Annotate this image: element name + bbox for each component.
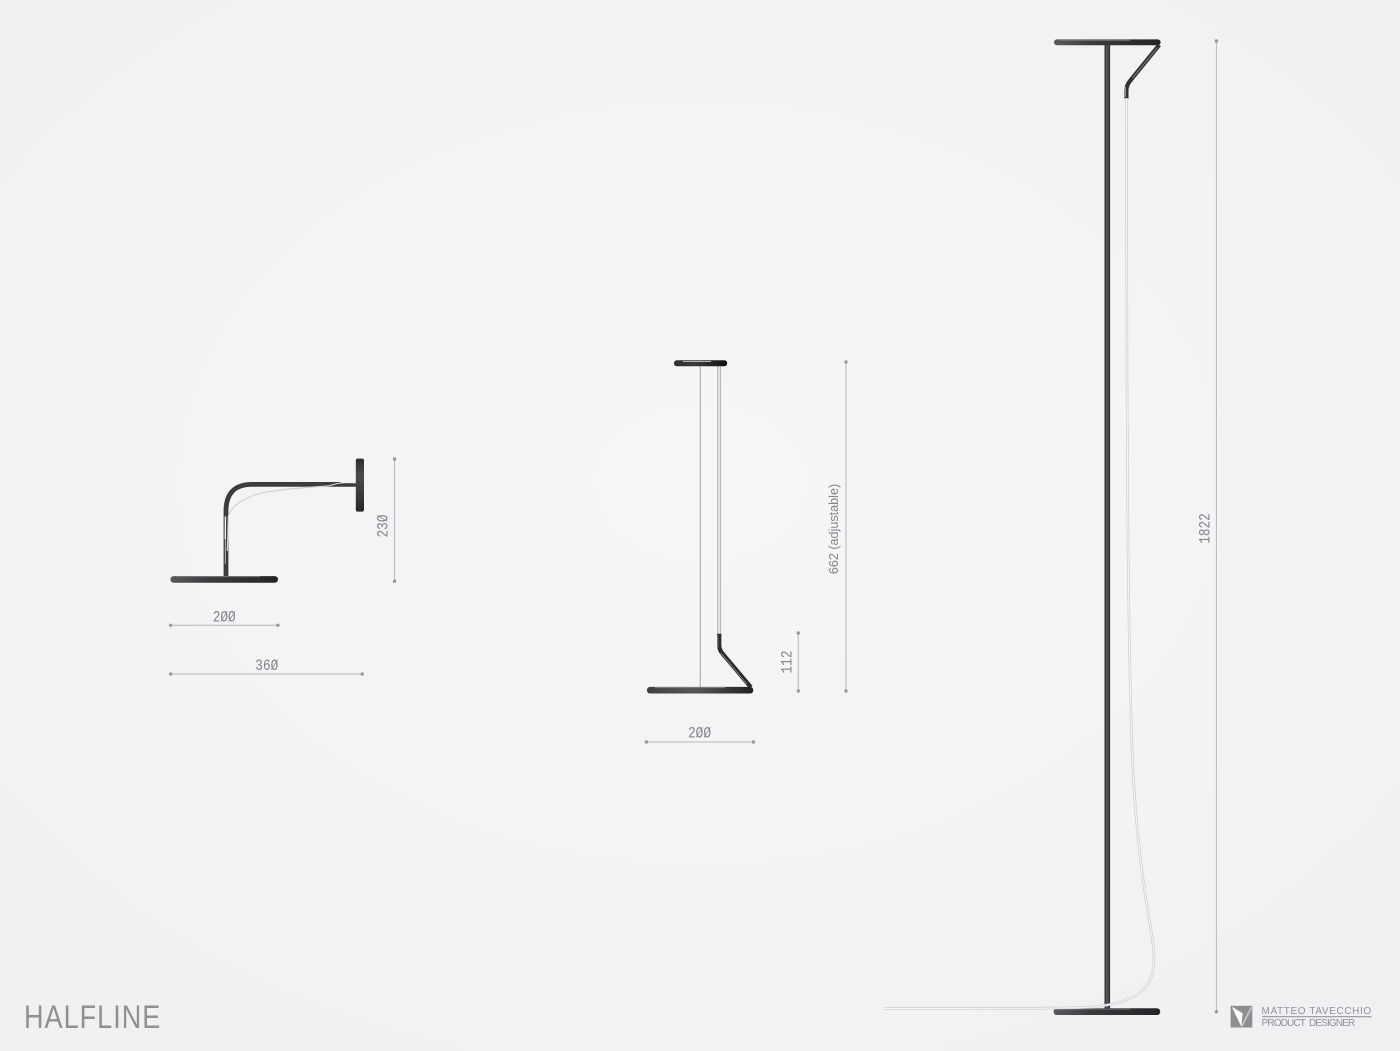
svg-text:2ØØ: 2ØØ xyxy=(213,608,236,626)
svg-text:23Ø: 23Ø xyxy=(375,514,393,537)
svg-text:1822: 1822 xyxy=(1197,513,1215,544)
svg-text:662 (adjustable): 662 (adjustable) xyxy=(827,484,841,574)
svg-text:36Ø: 36Ø xyxy=(255,657,278,675)
svg-text:2ØØ: 2ØØ xyxy=(688,725,711,743)
svg-text:112: 112 xyxy=(779,651,797,674)
